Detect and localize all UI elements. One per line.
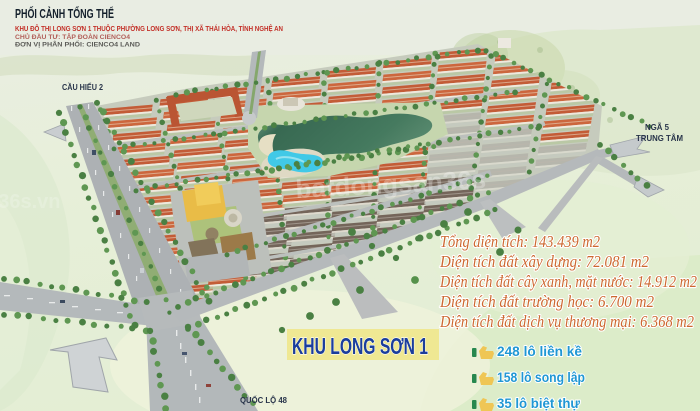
svg-text:QUỐC LỘ 48: QUỐC LỘ 48	[240, 395, 288, 405]
svg-text:KHU ĐÔ THỊ LONG SƠN 1 THUỘC PH: KHU ĐÔ THỊ LONG SƠN 1 THUỘC PHƯỜNG LONG …	[15, 24, 283, 33]
svg-text:NGÃ 5: NGÃ 5	[645, 122, 669, 132]
svg-text:Diện tích đất dịch vụ thương m: Diện tích đất dịch vụ thương mại: 6.368 …	[439, 312, 694, 331]
svg-text:35 lô biệt thự: 35 lô biệt thự	[497, 396, 580, 411]
svg-text:248 lô liền kề: 248 lô liền kề	[497, 344, 582, 359]
svg-text:Diện tích đất trường học: 6.70: Diện tích đất trường học: 6.700 m2	[439, 292, 654, 311]
svg-text:158 lô song lập: 158 lô song lập	[497, 370, 585, 385]
svg-text:KHU LONG SƠN 1: KHU LONG SƠN 1	[292, 333, 428, 359]
svg-text:PHỐI CẢNH TỔNG THỂ: PHỐI CẢNH TỔNG THỂ	[15, 6, 114, 21]
svg-text:Tổng diện tích: 143.439 m2: Tổng diện tích: 143.439 m2	[440, 232, 600, 251]
svg-text:Diện tích đất cây xanh, mặt nư: Diện tích đất cây xanh, mặt nước: 14.912…	[439, 272, 697, 291]
svg-text:Diện tích đất xây dựng: 72.081: Diện tích đất xây dựng: 72.081 m2	[439, 252, 649, 271]
svg-text:n36s.vn: n36s.vn	[0, 191, 60, 213]
svg-text:CẦU HIẾU 2: CẦU HIẾU 2	[62, 82, 103, 92]
svg-text:TRUNG TÂM: TRUNG TÂM	[636, 132, 683, 143]
